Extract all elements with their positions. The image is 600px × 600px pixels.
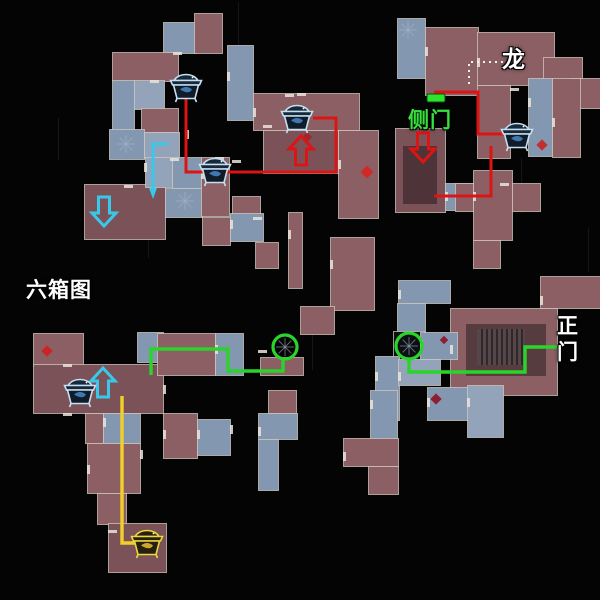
treasure-chest-icon bbox=[171, 75, 202, 103]
door-marker bbox=[103, 418, 106, 427]
map-room bbox=[369, 467, 399, 495]
door-marker bbox=[253, 108, 256, 117]
door-marker bbox=[288, 230, 291, 239]
door-marker bbox=[87, 465, 90, 474]
door-marker bbox=[500, 183, 509, 186]
map-room bbox=[135, 81, 165, 110]
map-room bbox=[474, 241, 501, 269]
game-map-screenshot: 龙 侧门 六箱图 正门 bbox=[0, 0, 600, 600]
door-marker bbox=[150, 80, 159, 83]
map-room bbox=[398, 19, 426, 79]
map-room bbox=[203, 218, 231, 246]
door-marker bbox=[427, 398, 430, 407]
door-marker bbox=[124, 185, 133, 188]
door-marker bbox=[263, 125, 272, 128]
door-marker bbox=[450, 345, 453, 354]
map-room bbox=[371, 391, 398, 441]
map-room bbox=[34, 334, 84, 367]
map-room bbox=[541, 277, 600, 309]
spiral-stair-icon bbox=[276, 338, 294, 356]
spiral-stair-icon bbox=[400, 337, 418, 355]
map-room bbox=[198, 420, 231, 456]
door-marker bbox=[232, 160, 241, 163]
map-room bbox=[195, 14, 223, 54]
door-marker bbox=[197, 430, 200, 439]
dragon-label: 龙 bbox=[502, 40, 526, 74]
door-marker bbox=[230, 425, 233, 434]
spiral-stair-icon bbox=[176, 192, 194, 210]
map-room bbox=[256, 243, 279, 269]
door-marker bbox=[330, 260, 333, 269]
door-marker bbox=[227, 72, 230, 81]
door-marker bbox=[173, 52, 182, 55]
map-room bbox=[113, 53, 179, 82]
map-room bbox=[426, 28, 479, 96]
door-marker bbox=[467, 398, 470, 407]
film-scratch bbox=[312, 332, 313, 370]
door-marker bbox=[144, 163, 147, 172]
door-marker bbox=[370, 400, 373, 409]
map-room bbox=[158, 334, 216, 376]
map-room bbox=[289, 213, 303, 289]
map-room bbox=[513, 184, 541, 212]
door-marker bbox=[375, 372, 378, 381]
map-room bbox=[553, 79, 581, 158]
door-marker bbox=[140, 450, 143, 459]
spiral-stair-icon bbox=[399, 21, 417, 39]
map-room bbox=[88, 444, 141, 494]
map-room bbox=[478, 86, 511, 159]
door-marker bbox=[163, 430, 166, 439]
door-marker bbox=[170, 158, 179, 161]
door-marker bbox=[258, 427, 261, 436]
door-marker bbox=[398, 372, 401, 381]
film-scratch bbox=[238, 2, 239, 48]
door-marker bbox=[230, 220, 233, 229]
door-marker bbox=[338, 160, 341, 169]
map-room bbox=[468, 386, 504, 438]
map-room bbox=[474, 171, 513, 241]
door-marker bbox=[528, 98, 531, 107]
main-gate-label: 正门 bbox=[557, 314, 582, 365]
room-shadow bbox=[403, 146, 437, 204]
film-scratch bbox=[588, 228, 589, 272]
door-marker bbox=[163, 385, 166, 394]
film-scratch bbox=[58, 118, 59, 160]
map-room bbox=[259, 414, 298, 440]
map-room bbox=[301, 307, 335, 335]
map-room bbox=[86, 414, 104, 444]
side-door-label: 侧门 bbox=[408, 104, 452, 134]
door-marker bbox=[253, 217, 262, 220]
staircase-icon bbox=[477, 329, 525, 365]
map-room bbox=[259, 440, 279, 491]
door-marker bbox=[510, 88, 519, 91]
spiral-stair-icon bbox=[117, 135, 135, 153]
door-marker bbox=[258, 350, 267, 353]
door-marker bbox=[552, 118, 555, 127]
side-door-marker bbox=[427, 94, 445, 102]
door-marker bbox=[540, 296, 543, 305]
map-room bbox=[142, 109, 179, 133]
six-box-map-label: 六箱图 bbox=[26, 274, 92, 304]
door-marker bbox=[297, 93, 306, 96]
map-room bbox=[164, 414, 198, 459]
door-marker bbox=[425, 47, 428, 56]
map-room bbox=[146, 158, 173, 188]
map-room bbox=[269, 391, 297, 414]
map-room bbox=[164, 23, 197, 54]
door-marker bbox=[63, 413, 72, 416]
map-room bbox=[166, 189, 203, 218]
map-room bbox=[339, 131, 379, 219]
door-marker bbox=[63, 364, 72, 367]
door-marker bbox=[398, 290, 401, 299]
map-room bbox=[228, 46, 254, 121]
map-room bbox=[344, 439, 399, 467]
map-room bbox=[331, 238, 375, 311]
door-marker bbox=[343, 452, 346, 461]
door-marker bbox=[108, 530, 117, 533]
map-room bbox=[399, 281, 451, 304]
door-marker bbox=[285, 94, 294, 97]
